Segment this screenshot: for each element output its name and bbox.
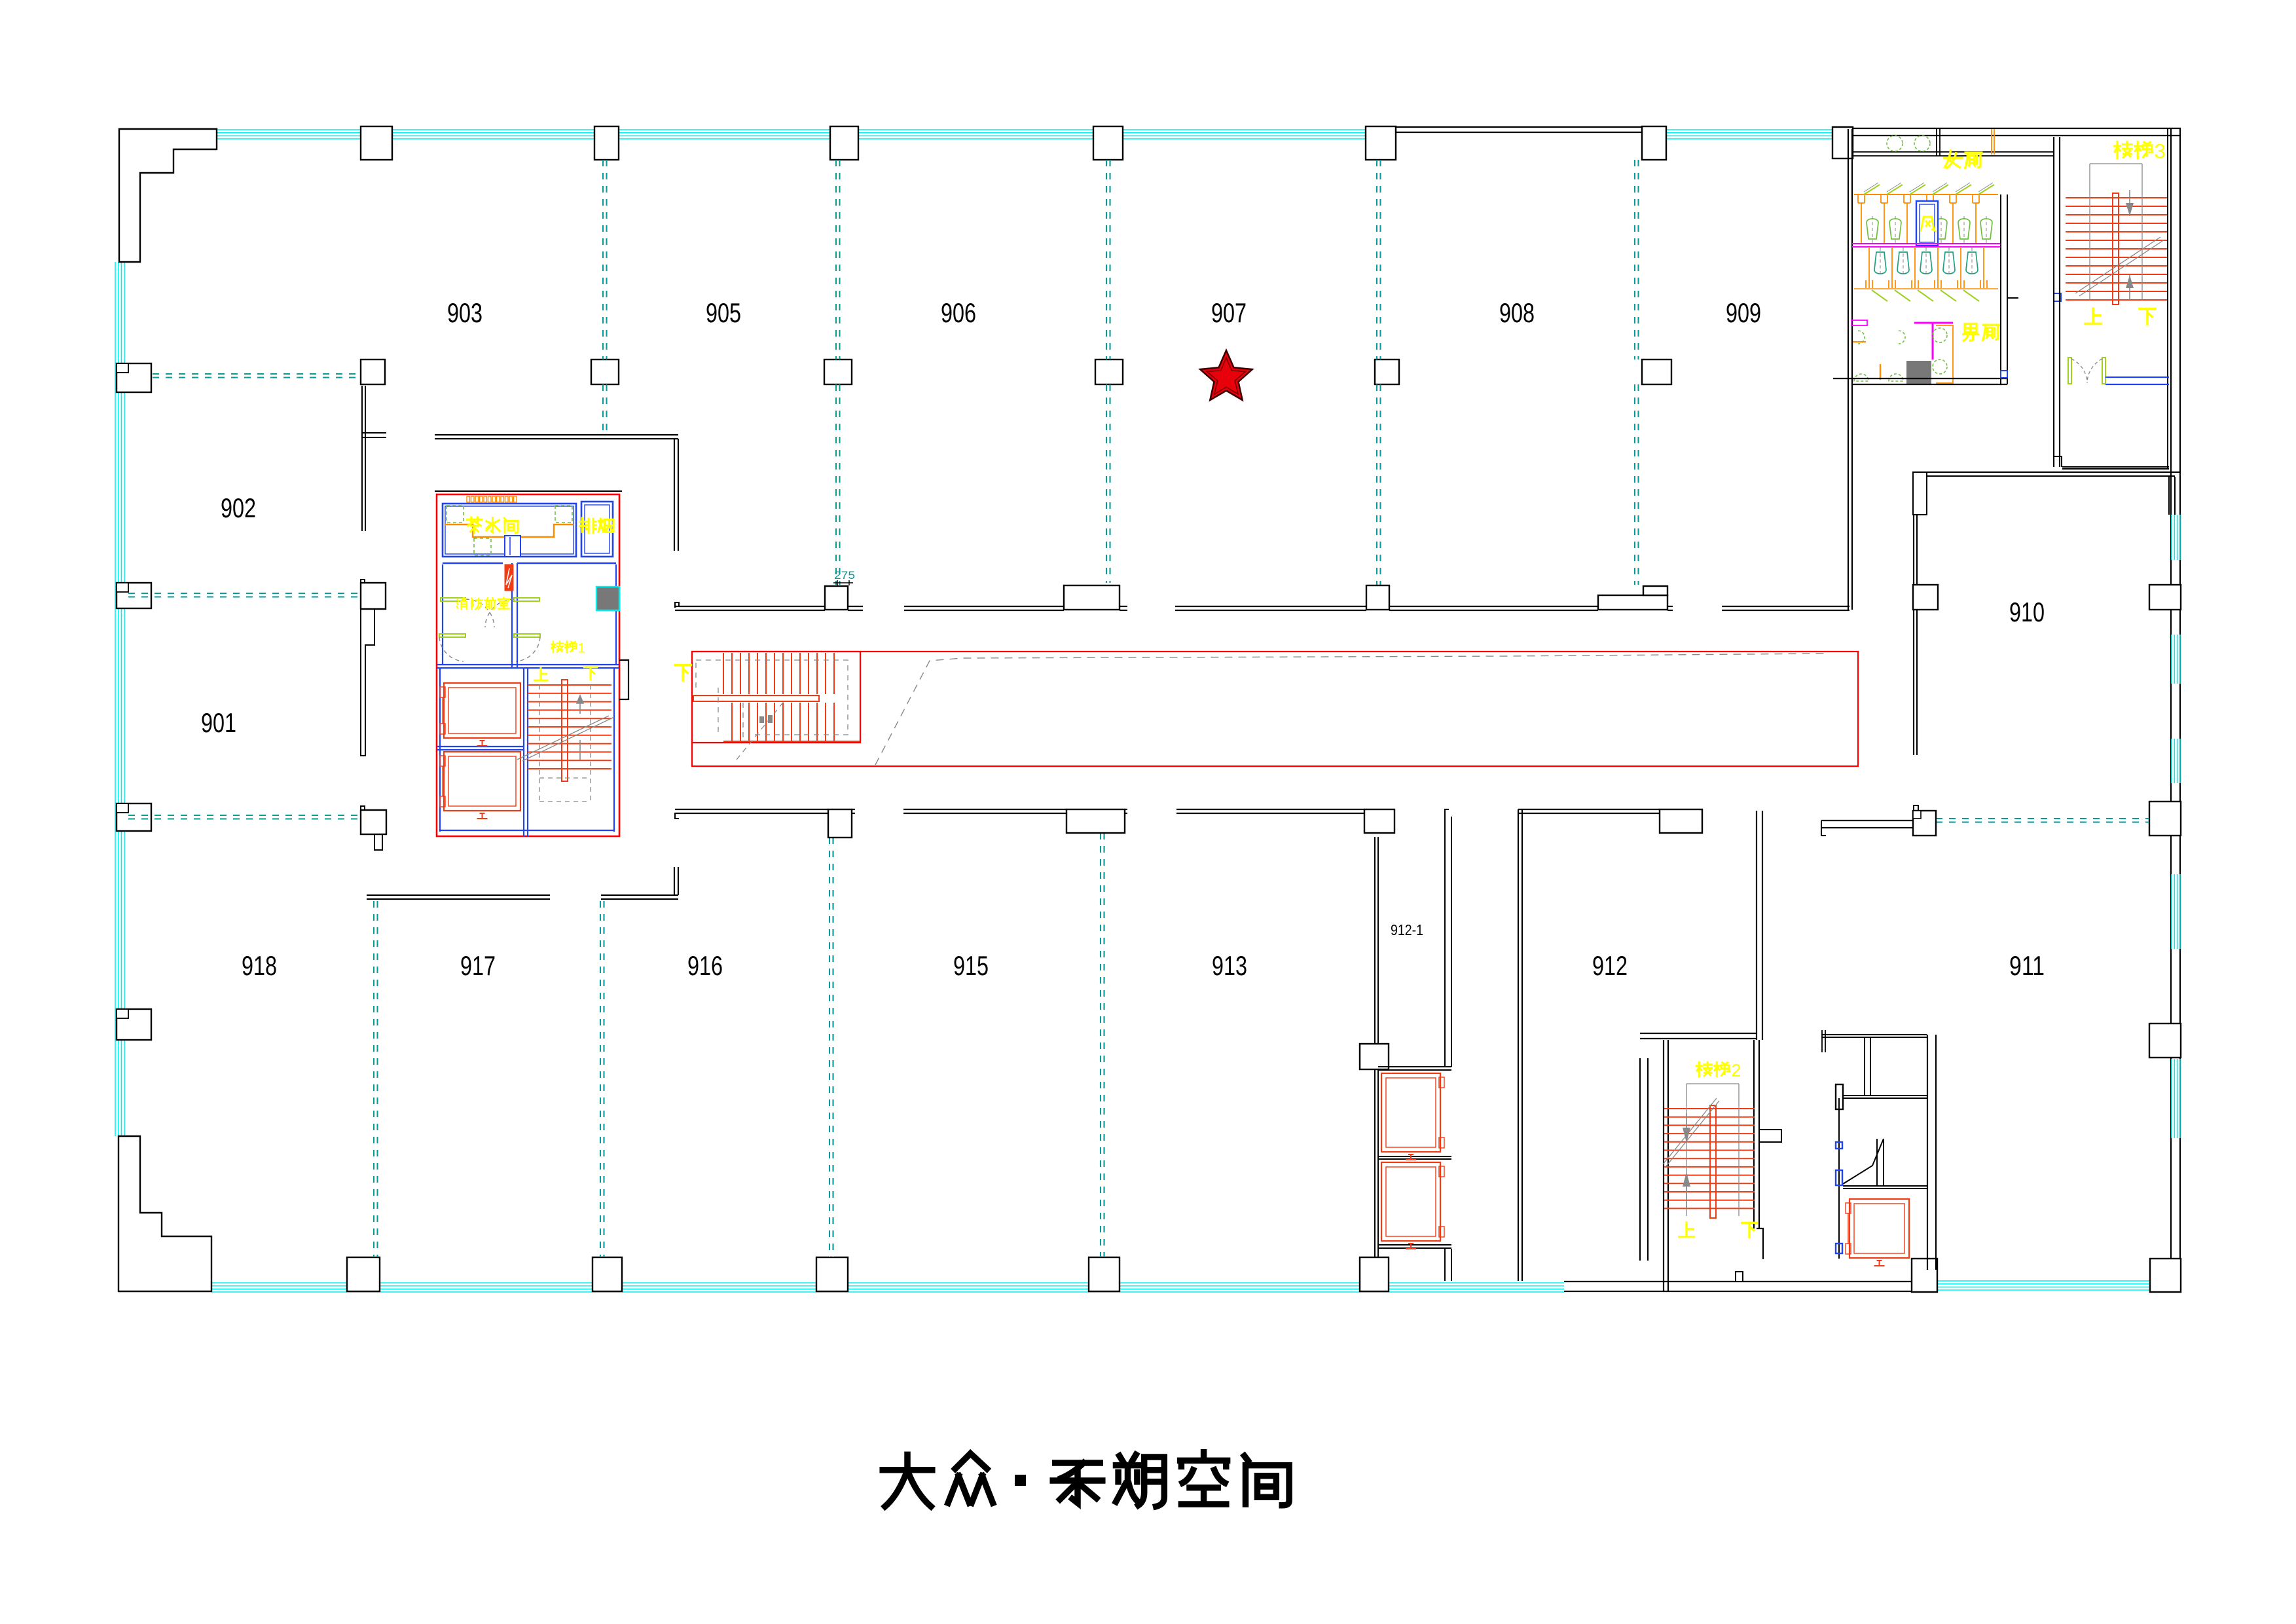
svg-text:912-1: 912-1 — [1391, 921, 1423, 938]
svg-text:2: 2 — [1731, 1060, 1741, 1080]
svg-text:917: 917 — [460, 950, 496, 981]
svg-text:915: 915 — [953, 950, 989, 981]
svg-text:275: 275 — [834, 569, 855, 581]
svg-text:913: 913 — [1212, 950, 1247, 981]
svg-text:912: 912 — [1592, 950, 1628, 981]
svg-text:907: 907 — [1211, 297, 1247, 328]
svg-text:911: 911 — [2009, 950, 2045, 981]
svg-text:905: 905 — [706, 297, 741, 328]
svg-text:902: 902 — [221, 492, 256, 523]
svg-text:908: 908 — [1499, 297, 1535, 328]
svg-text:1: 1 — [578, 640, 586, 655]
svg-text:916: 916 — [687, 950, 723, 981]
svg-text:906: 906 — [941, 297, 976, 328]
svg-text:903: 903 — [447, 297, 483, 328]
svg-text:910: 910 — [2009, 597, 2045, 627]
svg-text:918: 918 — [242, 950, 277, 981]
svg-text:3: 3 — [2154, 139, 2166, 163]
svg-text:901: 901 — [201, 707, 236, 738]
svg-text:909: 909 — [1726, 297, 1761, 328]
